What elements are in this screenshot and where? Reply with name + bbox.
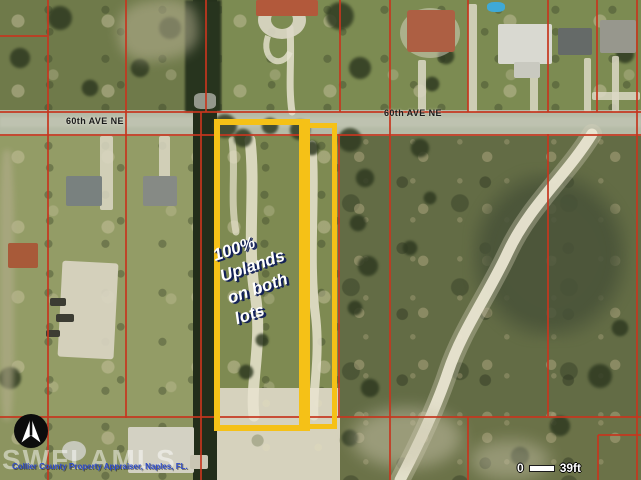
parcel-line bbox=[0, 111, 641, 113]
tree-canopy bbox=[355, 168, 375, 188]
tree-canopy bbox=[360, 378, 380, 398]
parcel-line bbox=[467, 0, 469, 112]
cleared-pad bbox=[58, 261, 119, 360]
parcel-line bbox=[597, 435, 599, 480]
driveway bbox=[592, 92, 640, 100]
parcel-line bbox=[205, 0, 207, 112]
parcel-line bbox=[389, 0, 391, 480]
parcel-line bbox=[0, 35, 47, 37]
tree-canopy bbox=[47, 5, 73, 31]
pool bbox=[487, 2, 505, 12]
parcel-line bbox=[125, 0, 127, 418]
aerial-map: 60th AVE NE 60th AVE NE 100% Uplands on … bbox=[0, 0, 641, 480]
driveway bbox=[418, 60, 426, 112]
attribution-text: Collier County Property Appraiser, Naple… bbox=[12, 462, 188, 471]
street-label-right: 60th AVE NE bbox=[384, 108, 442, 118]
shed-roof bbox=[190, 455, 208, 469]
tree-canopy bbox=[337, 127, 363, 153]
house-roof bbox=[256, 0, 318, 16]
tree-canopy bbox=[348, 56, 372, 80]
street-label-left: 60th AVE NE bbox=[66, 116, 124, 126]
parcel-line bbox=[636, 0, 638, 480]
house-roof bbox=[8, 243, 38, 268]
parcel-line bbox=[47, 0, 49, 480]
tree-canopy bbox=[402, 240, 418, 256]
house-roof bbox=[407, 10, 455, 52]
vehicle bbox=[50, 298, 66, 306]
driveway bbox=[584, 58, 591, 112]
house-roof bbox=[514, 62, 540, 78]
house-roof bbox=[600, 20, 636, 53]
parcel-line bbox=[339, 0, 341, 112]
house-roof bbox=[498, 24, 552, 64]
scale-bar-segment bbox=[529, 465, 555, 472]
driveway bbox=[612, 56, 619, 112]
house-roof bbox=[558, 28, 592, 55]
tree-canopy bbox=[347, 300, 363, 316]
parcel-line bbox=[598, 434, 641, 436]
parcel-line bbox=[547, 134, 549, 416]
sand-patch bbox=[0, 150, 14, 420]
scale-start-label: 0 bbox=[517, 461, 524, 475]
parcel-line bbox=[547, 0, 549, 112]
parcel-line bbox=[467, 417, 469, 480]
tree-canopy bbox=[549, 415, 571, 437]
north-arrow-icon bbox=[13, 413, 49, 449]
house-roof bbox=[143, 176, 177, 206]
driveway bbox=[468, 4, 477, 112]
tree-canopy bbox=[349, 214, 367, 232]
parcel-line bbox=[596, 0, 598, 112]
tree-canopy bbox=[9, 47, 31, 69]
tree-canopy bbox=[611, 319, 629, 337]
tree-canopy bbox=[423, 191, 437, 205]
tree-canopy bbox=[410, 138, 430, 158]
house-roof bbox=[66, 176, 102, 206]
vehicle bbox=[56, 314, 74, 322]
tree-canopy bbox=[81, 79, 99, 97]
tree-canopy bbox=[424, 76, 440, 92]
scale-bar: 0 39ft bbox=[517, 461, 581, 475]
scale-end-label: 39ft bbox=[560, 461, 581, 475]
tree-canopy bbox=[357, 255, 379, 277]
tree-canopy bbox=[587, 363, 613, 389]
parcel-line bbox=[200, 112, 202, 480]
